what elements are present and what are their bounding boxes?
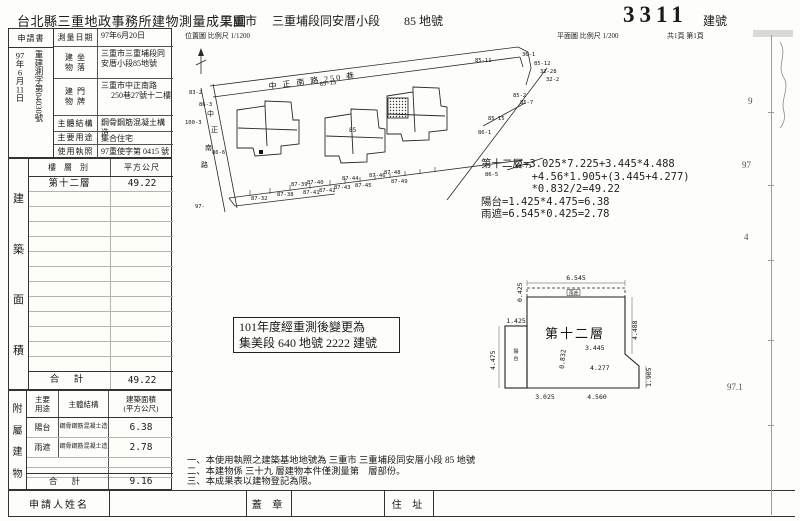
annex-table-side-label: 附 屬 建 物 bbox=[9, 391, 27, 489]
subject-building-hatched bbox=[388, 98, 408, 118]
file-number-vertical: 重建測字第04030號 bbox=[33, 50, 45, 122]
info-row-address: 建 門物 牌 三重市中正南路250巷27號十二樓 bbox=[54, 79, 173, 116]
area-table-header: 樓 層 別 平方公尺 bbox=[29, 159, 173, 177]
edge-fragment: 9 bbox=[748, 96, 753, 106]
svg-text:86-6: 86-6 bbox=[212, 150, 225, 156]
svg-text:87-44: 87-44 bbox=[342, 176, 359, 182]
dim-eave-depth: 0.425 bbox=[516, 282, 524, 302]
svg-text:87-49: 87-49 bbox=[391, 179, 408, 185]
annex-row-eave: 雨遮 鋼骨鋼筋混凝土造 2.78 bbox=[27, 438, 173, 458]
svg-text:85-12: 85-12 bbox=[534, 61, 551, 67]
edge-tick bbox=[768, 260, 774, 261]
svg-text:台: 台 bbox=[513, 355, 518, 362]
svg-text:85-13: 85-13 bbox=[320, 80, 337, 88]
dim-balcony-height: 4.475 bbox=[489, 350, 497, 370]
svg-text:32-2: 32-2 bbox=[546, 77, 559, 83]
floor-outline bbox=[527, 297, 639, 388]
annex-building-table: 附 屬 建 物 主要用途 主體結構 建築面積(平方公尺) 陽台 鋼骨鋼筋混凝土造… bbox=[8, 390, 172, 490]
area-table-empty-row bbox=[29, 222, 173, 237]
svg-text:87-38: 87-38 bbox=[277, 192, 294, 198]
dim-top: 6.545 bbox=[566, 274, 586, 282]
svg-text:100-3: 100-3 bbox=[185, 120, 202, 126]
applicant-name-label: 申請人姓名 bbox=[8, 491, 110, 516]
dim-balcony-width: 1.425 bbox=[506, 317, 526, 325]
parcel-85-label: 85 bbox=[349, 127, 357, 134]
survey-document: 台北縣三重地政事務所建物測量成果圖 三重市 三重埔段同安厝小段 85 地號 33… bbox=[0, 0, 800, 521]
building-area-table: 建 築 面 積 樓 層 別 平方公尺 第十二層 49.22 合 計 49.22 bbox=[8, 158, 172, 390]
page-edge-line bbox=[771, 35, 772, 515]
file-date-vertical: 97年6月11日 bbox=[14, 51, 26, 102]
svg-text:87-32: 87-32 bbox=[251, 196, 268, 202]
area-table-empty-row bbox=[29, 297, 173, 312]
dim-inner-c: 4.277 bbox=[590, 364, 610, 372]
annex-empty-row bbox=[27, 458, 173, 468]
application-label: 申請書 bbox=[9, 29, 53, 48]
area-table-empty-row bbox=[29, 342, 173, 357]
dim-inner-b: 0.832 bbox=[558, 349, 568, 369]
area-table-empty-row bbox=[29, 192, 173, 207]
svg-text:南: 南 bbox=[205, 143, 212, 152]
area-table-empty-row bbox=[29, 207, 173, 222]
city-name: 三重市 bbox=[221, 12, 257, 29]
building-cluster-right bbox=[387, 87, 447, 141]
svg-text:85-15: 85-15 bbox=[488, 116, 505, 122]
svg-text:86-1: 86-1 bbox=[478, 130, 491, 136]
info-row-location: 建 坐物 落 三重市三重埔段同安厝小段85地號 bbox=[54, 47, 173, 79]
resurvey-stamp: 101年度經重測後變更為 集美段 640 地號 2222 建號 bbox=[233, 317, 400, 353]
area-table-empty-row bbox=[29, 282, 173, 297]
building-number: 3311 bbox=[623, 2, 688, 28]
room-label: 第十二層 bbox=[545, 326, 605, 341]
dim-bottom-right: 4.560 bbox=[587, 393, 607, 401]
land-section: 三重埔段同安厝小段 bbox=[272, 12, 380, 29]
area-table-empty-row bbox=[29, 357, 173, 372]
svg-text:36-1: 36-1 bbox=[522, 52, 535, 58]
area-table-empty-row bbox=[29, 312, 173, 327]
dim-right-lower: 1.905 bbox=[645, 367, 653, 387]
svg-text:正: 正 bbox=[211, 126, 218, 134]
info-rows: 測量日期 97年6月20日 建 坐物 落 三重市三重埔段同安厝小段85地號 建 … bbox=[54, 29, 173, 157]
seal-label: 蓋 章 bbox=[246, 491, 292, 516]
info-row-structure: 主體結構 鋼骨鋼筋混凝土構造 bbox=[54, 116, 173, 132]
svg-text:陽: 陽 bbox=[513, 348, 518, 355]
address-label: 住 址 bbox=[384, 491, 434, 516]
edge-tick bbox=[768, 425, 774, 426]
area-table-total-row: 合 計 49.22 bbox=[29, 371, 173, 389]
dim-right-upper: 4.488 bbox=[631, 320, 639, 340]
info-row-usage: 主要用途 集合住宅 bbox=[54, 132, 173, 145]
svg-text:87-40: 87-40 bbox=[307, 180, 324, 186]
svg-text:87-39: 87-39 bbox=[291, 182, 308, 188]
svg-text:87-43: 87-43 bbox=[334, 185, 351, 191]
edge-fragment: 97.1 bbox=[727, 382, 743, 392]
edge-squiggle bbox=[774, 40, 794, 130]
dim-bottom-left: 3.025 bbox=[535, 393, 555, 401]
svg-text:路: 路 bbox=[201, 160, 208, 169]
svg-text:85-11: 85-11 bbox=[475, 58, 492, 64]
svg-text:86-3: 86-3 bbox=[199, 102, 212, 108]
edge-tick bbox=[768, 340, 774, 341]
annex-table-header: 主要用途 主體結構 建築面積(平方公尺) bbox=[27, 391, 173, 418]
area-table-empty-row bbox=[29, 267, 173, 282]
annex-row-balcony: 陽台 鋼骨鋼筋混凝土造 6.38 bbox=[27, 418, 173, 438]
svg-text:83-2: 83-2 bbox=[189, 90, 202, 96]
faded-stamp-mark bbox=[753, 30, 793, 37]
svg-text:85-7: 85-7 bbox=[520, 100, 533, 106]
applicant-row: 申請人姓名 蓋 章 住 址 bbox=[8, 490, 795, 517]
annex-total-row: 合 計 9.16 bbox=[27, 473, 173, 489]
land-number: 85 地號 bbox=[404, 12, 443, 29]
application-column: 申請書 97年6月11日 重建測字第04030號 bbox=[9, 29, 54, 157]
area-table-row: 第十二層 49.22 bbox=[29, 177, 173, 192]
svg-text:32-28: 32-28 bbox=[540, 69, 557, 75]
balcony-label: 陽 台 bbox=[513, 348, 518, 362]
floor-plan-drawing: 6.545 0.425 雨遮 1.425 4.475 4.488 1.905 3… bbox=[485, 268, 690, 413]
svg-text:87-45: 87-45 bbox=[355, 183, 372, 189]
page-info: 共1頁 第1頁 bbox=[667, 31, 704, 41]
area-table-empty-rows bbox=[29, 192, 173, 372]
svg-text:中: 中 bbox=[207, 109, 214, 118]
area-table-empty-row bbox=[29, 252, 173, 267]
svg-text:87-41: 87-41 bbox=[303, 190, 320, 196]
info-row-survey-date: 測量日期 97年6月20日 bbox=[54, 29, 173, 47]
area-calculations: 第十二層=3.025*7.225+3.445*4.488 +4.56*1.905… bbox=[481, 158, 690, 221]
building-cluster-middle bbox=[325, 109, 385, 163]
area-table-empty-row bbox=[29, 327, 173, 342]
building-info-table: 申請書 97年6月11日 重建測字第04030號 測量日期 97年6月20日 建… bbox=[8, 28, 172, 158]
building-number-label: 建號 bbox=[703, 12, 727, 29]
edge-fragment: 97 bbox=[742, 160, 751, 170]
edge-tick bbox=[768, 185, 774, 186]
dim-inner-a: 3.445 bbox=[585, 344, 605, 352]
edge-fragment: 4 bbox=[744, 232, 749, 242]
north-arrow bbox=[196, 48, 206, 74]
footnotes: 一、本使用執照之建築基地地號為 三重市 三重埔段同安厝小段 85 地號 二、本建… bbox=[187, 456, 475, 488]
building-cluster-left bbox=[237, 101, 299, 156]
eave-label: 雨遮 bbox=[569, 290, 578, 297]
area-table-side-label: 建 築 面 積 bbox=[9, 159, 29, 389]
svg-text:87-48: 87-48 bbox=[384, 170, 401, 176]
area-table-empty-row bbox=[29, 237, 173, 252]
svg-text:97-: 97- bbox=[195, 204, 205, 210]
info-row-license: 使用執照 97重使字第 0415 號 bbox=[54, 145, 173, 159]
svg-text:85-2: 85-2 bbox=[513, 93, 526, 99]
street-name-left: 中 正 南 路 bbox=[201, 109, 218, 169]
